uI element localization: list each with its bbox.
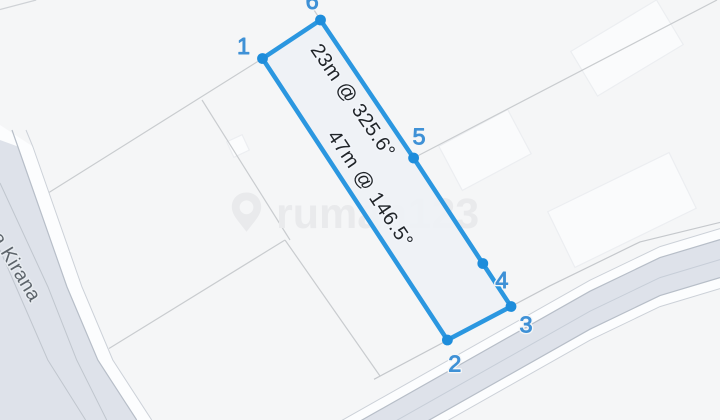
svg-text:5: 5 <box>412 124 425 150</box>
svg-text:3: 3 <box>519 312 532 338</box>
svg-text:1: 1 <box>237 33 250 59</box>
svg-text:4: 4 <box>495 267 508 293</box>
svg-text:6: 6 <box>306 0 319 14</box>
svg-text:2: 2 <box>448 351 461 377</box>
